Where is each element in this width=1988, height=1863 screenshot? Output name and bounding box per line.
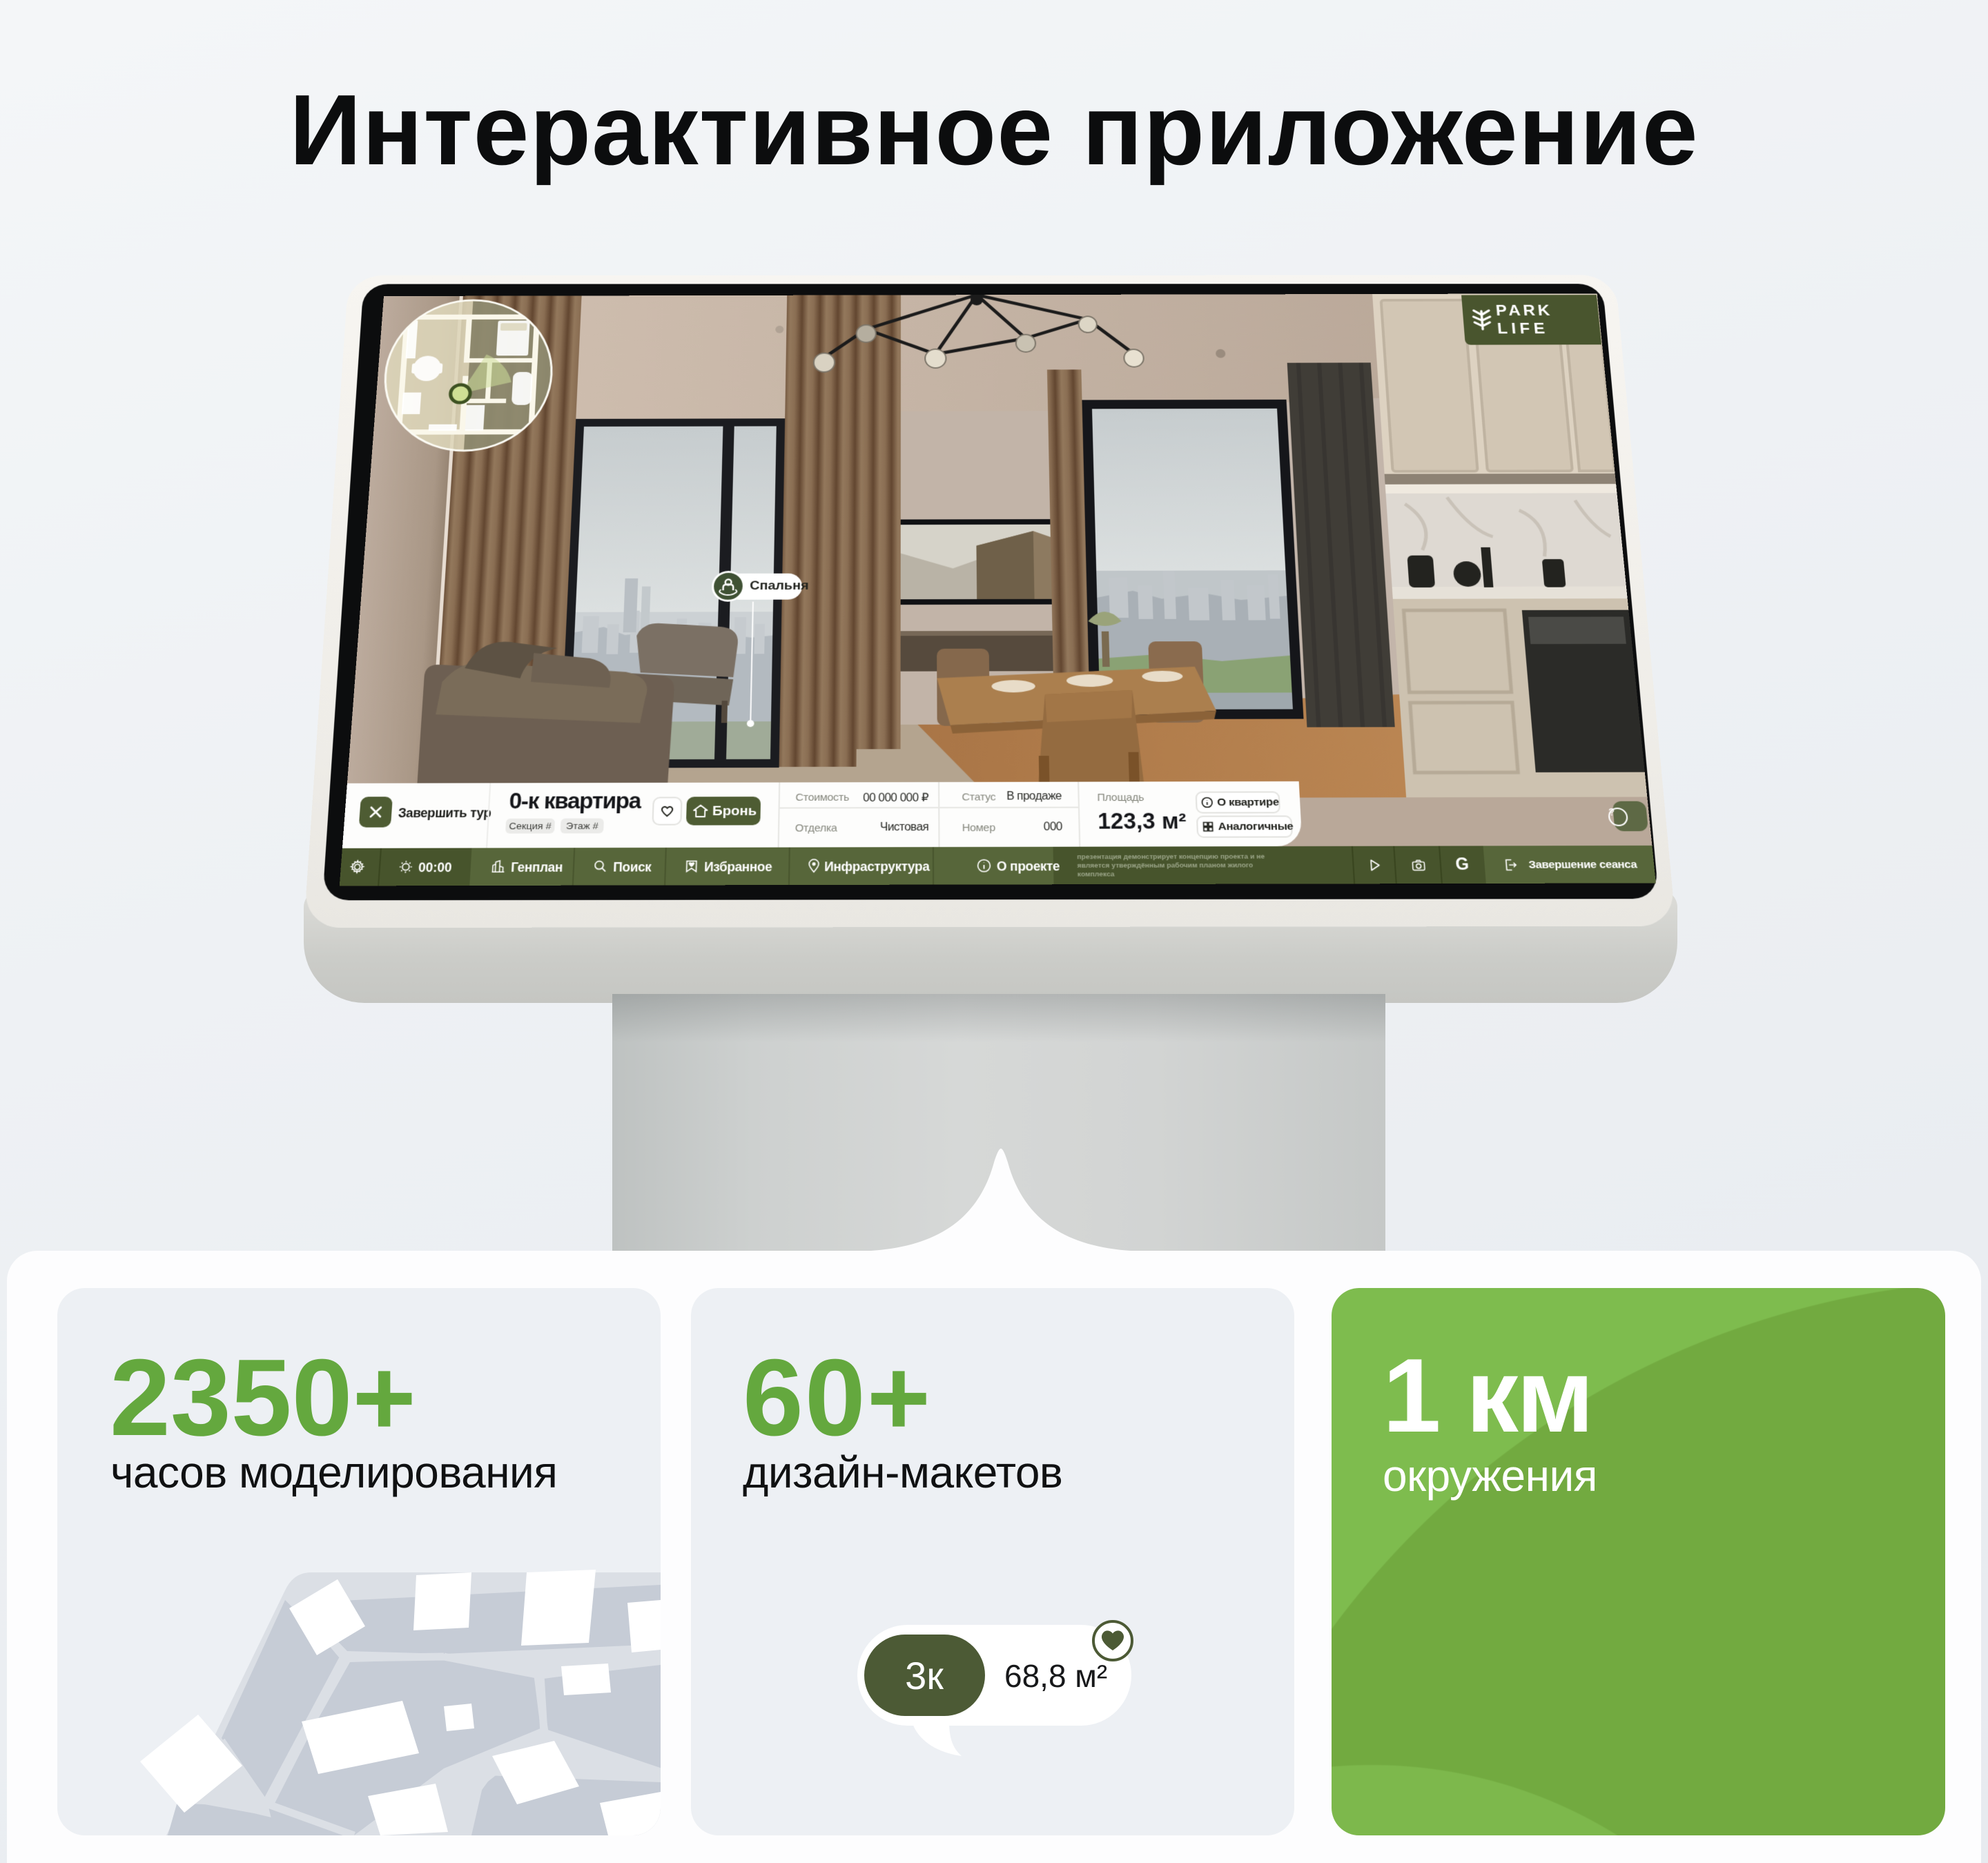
svg-text:PARK: PARK bbox=[1495, 302, 1553, 319]
svg-text:LIFE: LIFE bbox=[1497, 320, 1549, 337]
svg-text:3к: 3к bbox=[905, 1654, 944, 1697]
svg-text:?: ? bbox=[1608, 806, 1615, 818]
svg-text:68,8 м²: 68,8 м² bbox=[1004, 1658, 1107, 1694]
